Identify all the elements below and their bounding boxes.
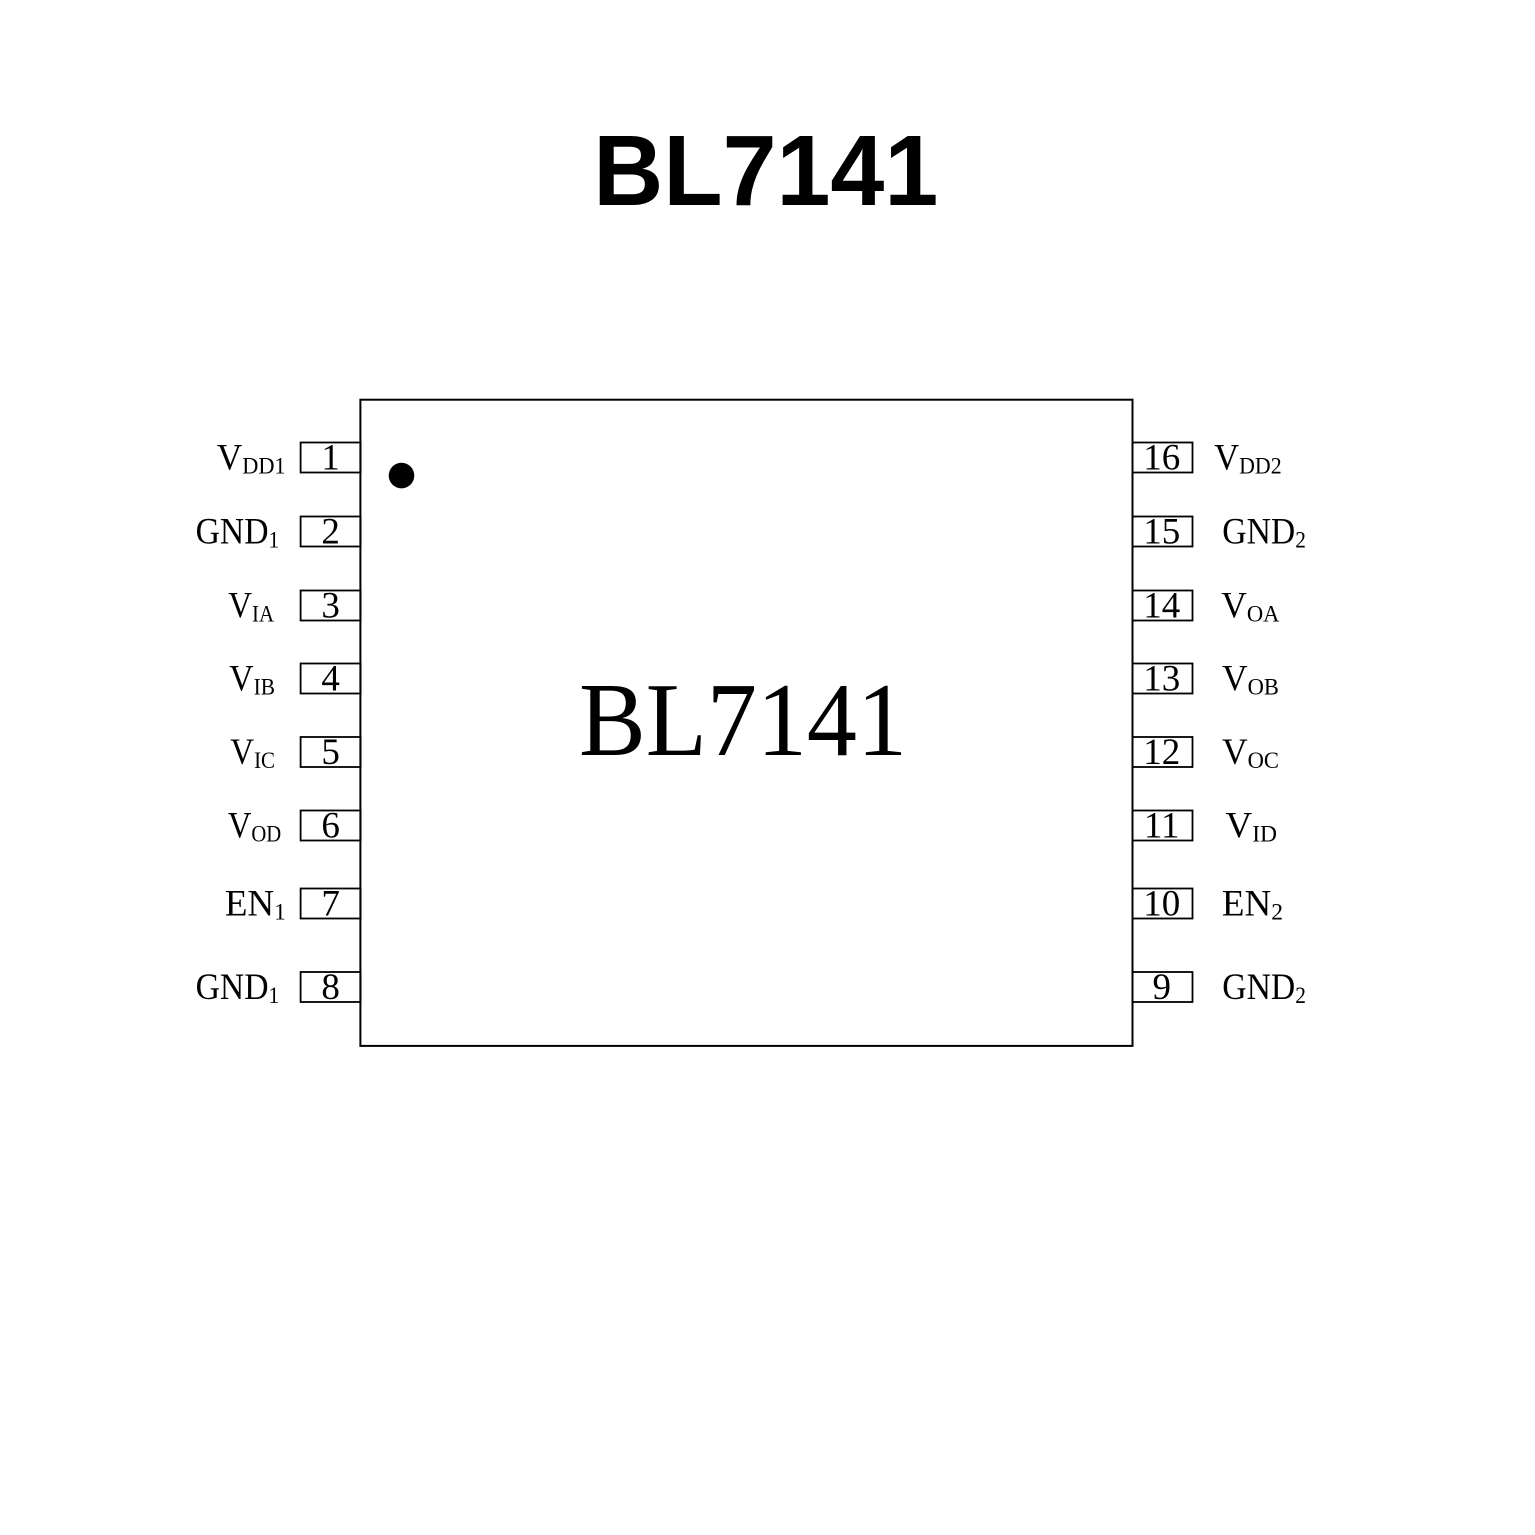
svg-text:BL7141: BL7141: [593, 115, 938, 227]
svg-text:10: 10: [1143, 884, 1180, 925]
svg-text:BL7141: BL7141: [579, 661, 907, 778]
svg-text:7: 7: [321, 884, 340, 925]
svg-text:9: 9: [1152, 967, 1171, 1008]
svg-text:16: 16: [1143, 438, 1180, 479]
svg-text:GND1: GND1: [196, 510, 280, 553]
svg-text:5: 5: [321, 732, 340, 773]
svg-text:8: 8: [321, 967, 340, 1008]
svg-text:GND2: GND2: [1222, 510, 1306, 553]
svg-text:4: 4: [321, 659, 340, 700]
svg-text:2: 2: [321, 512, 340, 553]
svg-text:GND2: GND2: [1222, 966, 1306, 1009]
svg-text:GND1: GND1: [196, 966, 280, 1009]
svg-text:13: 13: [1143, 659, 1180, 700]
svg-text:6: 6: [321, 806, 340, 847]
svg-text:12: 12: [1143, 732, 1180, 773]
svg-text:3: 3: [321, 586, 340, 627]
svg-text:15: 15: [1143, 512, 1180, 553]
svg-text:1: 1: [321, 438, 340, 479]
svg-text:11: 11: [1144, 806, 1180, 847]
svg-text:14: 14: [1143, 586, 1180, 627]
